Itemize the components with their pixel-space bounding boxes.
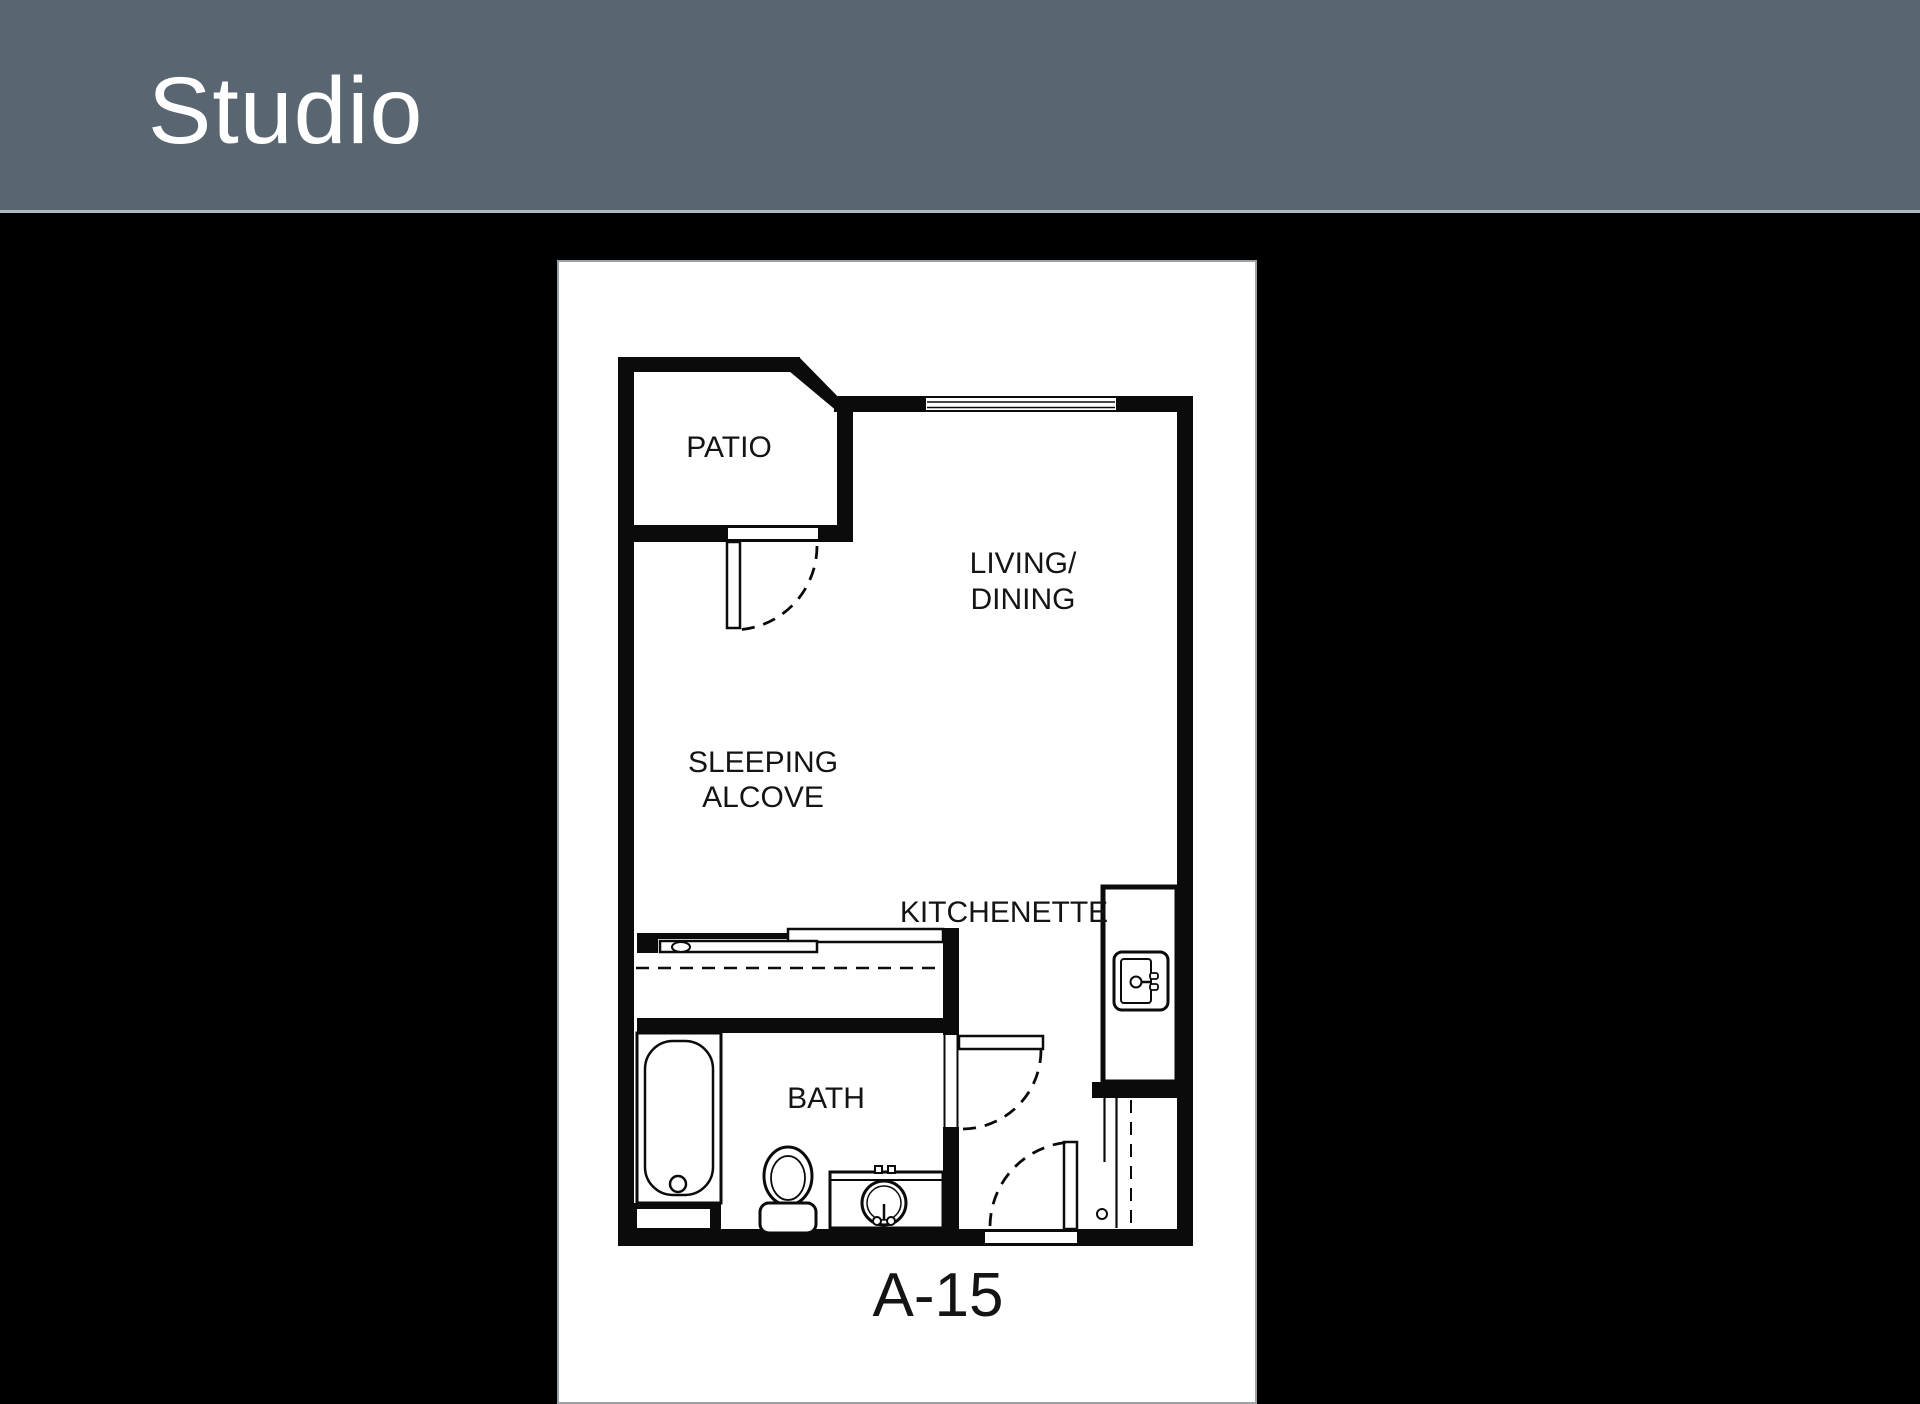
closet-handle xyxy=(672,942,690,952)
label-bath: BATH xyxy=(787,1082,865,1115)
closet-sliding-doors-icon xyxy=(636,929,943,968)
closet-left-stub xyxy=(637,933,658,953)
patio-top-wall xyxy=(618,357,800,372)
unit-number-label: A-15 xyxy=(873,1261,1004,1330)
patio-door-leaf xyxy=(727,542,740,628)
bath-top-wall xyxy=(637,1018,959,1033)
right-wall xyxy=(1177,396,1193,1246)
hall-closet-icon xyxy=(1097,1098,1131,1228)
label-sleeping-line1: SLEEPING xyxy=(688,746,838,779)
bathroom-sink-icon xyxy=(830,1166,943,1228)
patio-door-icon xyxy=(727,525,818,630)
mid-wall-upper xyxy=(943,928,959,1035)
entry-door-swing-arc xyxy=(990,1142,1075,1226)
screen: Studio xyxy=(0,0,1920,1404)
kitchen-sink-icon xyxy=(1103,887,1177,1082)
patio-bottom-wall-stub xyxy=(818,525,853,542)
patio-bottom-wall xyxy=(618,525,728,542)
mid-wall-lower xyxy=(943,1127,959,1246)
patio-door-swing-arc xyxy=(733,546,817,630)
label-sleeping-line2: ALCOVE xyxy=(702,781,824,814)
kitchen-faucet-handle xyxy=(1150,984,1158,990)
entry-door-icon xyxy=(985,1142,1077,1246)
bottom-wall-right xyxy=(1077,1229,1193,1246)
label-living-line2: DINING xyxy=(971,583,1076,616)
label-living-line1: LIVING/ xyxy=(970,547,1077,580)
vanity-faucet-knob xyxy=(875,1166,882,1173)
entry-door-leaf xyxy=(1064,1142,1077,1229)
bath-door-swing-arc xyxy=(962,1050,1041,1129)
toilet-tank xyxy=(760,1203,816,1233)
bathtub-drain xyxy=(670,1176,686,1192)
window-icon xyxy=(925,397,1117,411)
bath-door-leaf xyxy=(959,1036,1043,1049)
tub-wall-inset xyxy=(637,1209,710,1228)
hall-closet-pull xyxy=(1097,1209,1107,1219)
bath-door-icon xyxy=(945,1035,1044,1129)
patio-right-wall xyxy=(837,400,853,542)
kitchen-faucet-base xyxy=(1131,977,1142,988)
window-frame xyxy=(925,397,1117,411)
toilet-icon xyxy=(760,1147,816,1233)
bathtub-icon xyxy=(637,1033,721,1203)
vanity-faucet-knob xyxy=(888,1166,895,1173)
floor-plan: PATIO LIVING/ DINING SLEEPING ALCOVE KIT… xyxy=(0,0,1920,1404)
label-kitchenette: KITCHENETTE xyxy=(900,896,1108,929)
sink-tap xyxy=(873,1217,881,1225)
kitchen-faucet-handle xyxy=(1150,973,1158,979)
left-wall xyxy=(618,357,634,1246)
label-patio: PATIO xyxy=(686,431,772,464)
sink-tap xyxy=(887,1217,895,1225)
